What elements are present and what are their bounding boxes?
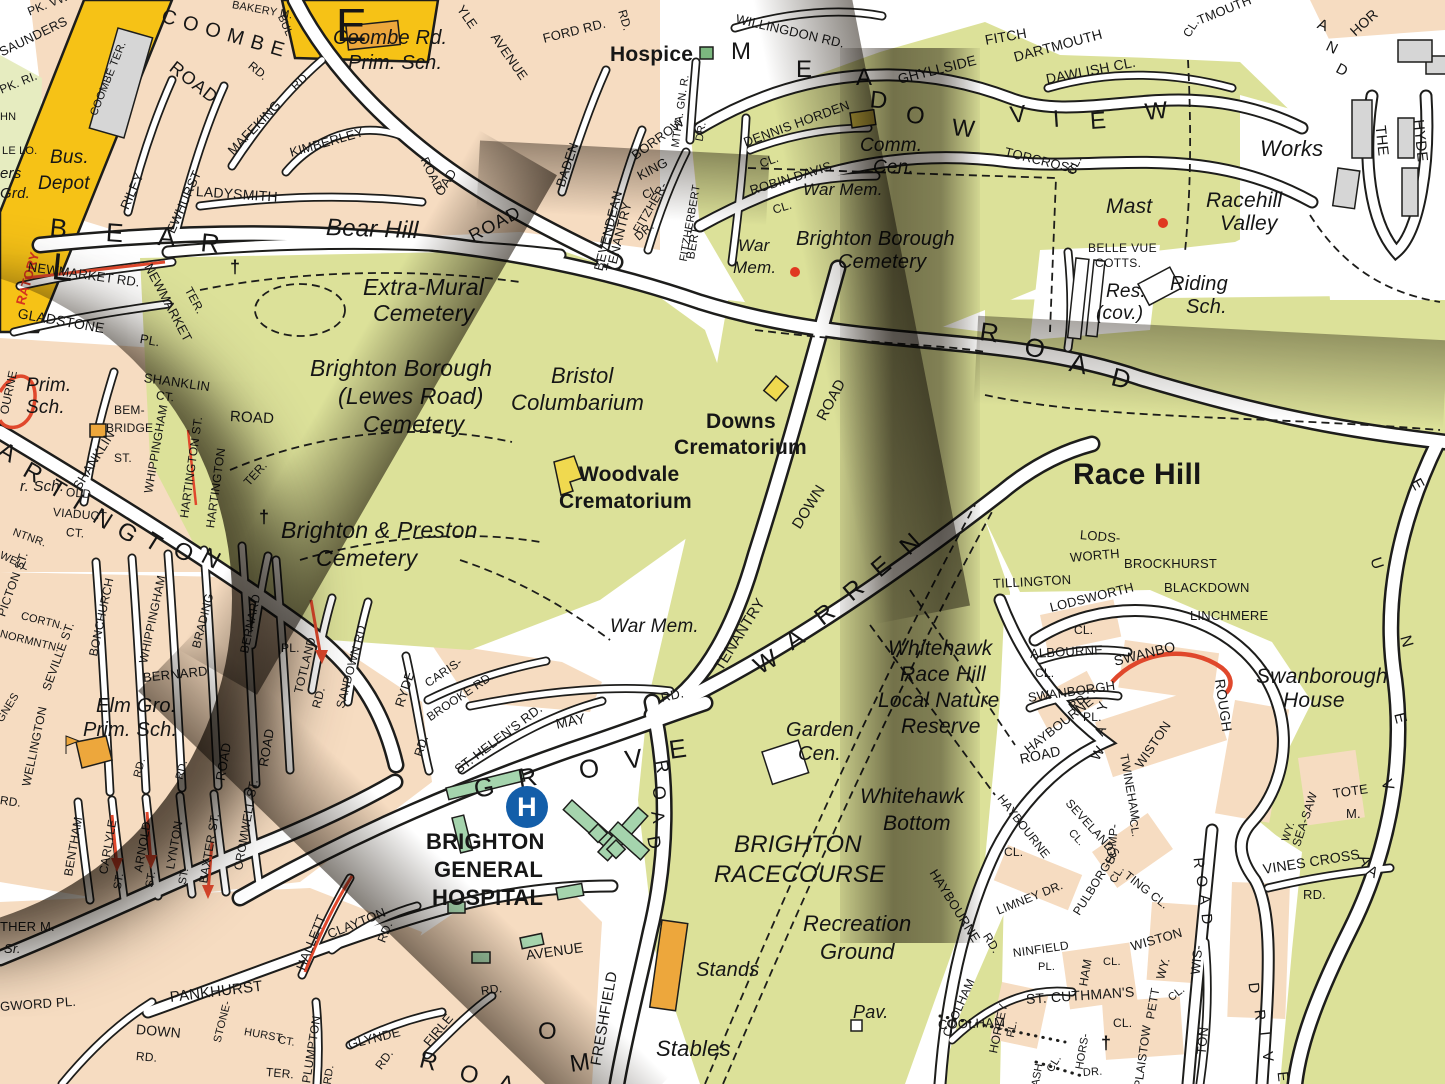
map-label-hospital: HOSPITAL — [432, 887, 543, 909]
map-label-ground: Ground — [820, 941, 895, 963]
map-label-a: A — [0, 439, 21, 468]
map-label-pk-ri: PK. RI. — [0, 70, 39, 96]
map-label-bem: BEM- — [114, 404, 145, 416]
map-label-cl: CL. — [1065, 154, 1084, 177]
map-label-cov: (cov.) — [1096, 304, 1143, 323]
map-label-haybourne: HAYBOURNE — [927, 867, 982, 944]
map-label-a: A — [1197, 894, 1213, 906]
map-label-d: D — [644, 834, 664, 851]
map-label-cl: CL. — [1113, 1017, 1132, 1029]
map-label-house: House — [1283, 690, 1345, 711]
map-label-wy: WY. — [1154, 956, 1172, 980]
map-label-n: N — [896, 528, 927, 559]
map-label-v: V — [1009, 102, 1028, 128]
map-label-limney-dr: LIMNEY DR. — [995, 879, 1065, 917]
map-label-hors: HORS- — [1075, 1033, 1092, 1071]
map-label-st: ST. — [113, 872, 127, 890]
hospital-symbol-icon: H — [506, 786, 548, 828]
map-label-cl: CL. — [1045, 1054, 1064, 1075]
map-label-bonchurch: BONCHURCH — [87, 577, 115, 658]
map-label-hor: HOR — [1347, 7, 1380, 39]
map-label-r: R — [1191, 857, 1207, 870]
map-label-cemetery: Cemetery — [316, 547, 417, 570]
map-label-road: ROAD — [214, 742, 233, 782]
map-label-v: V — [1377, 778, 1396, 794]
map-label-elm-gro: Elm Gro. — [96, 696, 177, 716]
map-label-ct: CT. — [155, 389, 175, 403]
map-label-o: O — [538, 1020, 558, 1044]
map-label-brading: BRADING — [190, 592, 215, 649]
map-label-road: ROAD — [230, 409, 275, 426]
map-label-mast: Mast — [1106, 196, 1152, 217]
map-label-local-nature: Local Nature — [878, 690, 999, 711]
map-label-crematorium: Crematorium — [559, 491, 692, 512]
map-label-blackdown: BLACKDOWN — [1164, 581, 1250, 594]
map-label-sch: Sch. — [1186, 297, 1227, 317]
map-label-e: E — [105, 219, 125, 246]
map-label-d: D — [1199, 913, 1215, 926]
map-label-d: D — [869, 88, 890, 114]
map-label-o: O — [457, 1061, 482, 1084]
map-label-o: O — [1023, 333, 1048, 362]
map-label-plaistow: PLAISTOW — [1132, 1024, 1153, 1084]
map-label-rd: RD. — [373, 1047, 395, 1071]
map-label-ct: CT. — [65, 526, 85, 540]
map-label-m: M — [731, 40, 752, 64]
map-label-prim: Prim. — [26, 376, 71, 395]
map-label-ther-m: THER M. — [0, 920, 55, 933]
map-label-newmarket: NEWMARKET — [142, 261, 194, 343]
map-label-a: A — [648, 809, 668, 825]
map-label-lods: LODS- — [1079, 528, 1121, 545]
map-label-r: R — [417, 1048, 441, 1076]
map-label-hn: HN — [0, 112, 16, 123]
map-label-cemetery: Cemetery — [363, 413, 464, 436]
map-label-lewes-road: (Lewes Road) — [338, 385, 484, 408]
map-label-brighton-preston: Brighton & Preston — [281, 519, 478, 542]
map-label-tmouth: TMOUTH — [1196, 0, 1254, 27]
map-label-ers: ers — [0, 166, 21, 181]
map-label-o: O — [904, 103, 927, 130]
map-label-down: DOWN — [135, 1022, 181, 1040]
map-label-v: V — [1260, 1051, 1276, 1064]
map-label-ninfield: NINFIELD — [1012, 939, 1069, 959]
map-label-r: R — [810, 599, 840, 630]
map-label-a: A — [1067, 349, 1090, 378]
map-label-bernard: BERNARD — [238, 593, 262, 654]
map-label-wiston: WISTON — [1129, 926, 1184, 953]
map-label-stables: Stables — [656, 1038, 731, 1060]
map-label-brockhurst: BROCKHURST — [1124, 557, 1217, 570]
map-label-ter: TER. — [183, 285, 207, 315]
map-label-cen: Cen. — [798, 744, 841, 764]
map-label-st: ST. — [114, 452, 132, 464]
map-label-rd: RD. — [480, 982, 503, 997]
map-label-res: Res. — [1106, 282, 1146, 301]
map-label-sandown-rd: SANDOWN RD. — [334, 621, 369, 710]
map-label-freshfield: FRESHFIELD — [589, 970, 620, 1067]
map-label-t: T — [141, 529, 167, 558]
map-label-r: R — [1252, 1009, 1268, 1022]
map-label-rd: RD. — [1303, 888, 1326, 901]
map-label-r: R — [200, 229, 222, 257]
map-label-ford-rd: FORD RD. — [541, 17, 607, 45]
map-label-e: E — [1275, 1071, 1291, 1084]
map-label-r: R — [652, 758, 672, 775]
map-label-baden: BADEN — [554, 141, 581, 189]
map-label-w: W — [1144, 99, 1170, 125]
map-label-i: I — [1257, 1031, 1272, 1038]
map-label-pankhurst: PANKHURST — [169, 979, 263, 1005]
map-label-newmarket-rd: NEWMARKET RD. — [27, 260, 141, 289]
map-label-road: ROAD — [466, 203, 524, 245]
map-label-e: E — [867, 552, 897, 583]
map-label-extra-mural: Extra-Mural — [363, 276, 484, 299]
map-label-e: E — [796, 58, 813, 82]
map-label-hartington: HARTINGTON — [204, 447, 227, 529]
map-label-ton: TON — [1195, 1026, 1211, 1055]
map-label-o: O — [577, 754, 602, 783]
map-label-whippingham: WHIPPINGHAM — [142, 404, 169, 494]
map-label-racecourse: RACECOURSE — [714, 863, 885, 887]
map-label-a: A — [1315, 17, 1330, 35]
map-label-g: G — [472, 773, 497, 802]
map-label-a: A — [781, 624, 810, 655]
map-label-brighton: BRIGHTON — [426, 831, 545, 853]
map-canvas[interactable]: PK. VW.SAUNDERSPK. RI.HNLE LO.ersGrd.Bus… — [0, 0, 1445, 1084]
map-label-cl: CL. — [1066, 828, 1086, 849]
map-label-m: M. — [1346, 807, 1361, 820]
map-label-grd: Grd. — [0, 186, 30, 201]
map-label-ash: ASH — [1031, 1063, 1046, 1084]
map-label-cl: CL. — [771, 199, 793, 216]
map-label-ourne: OURNE — [0, 369, 19, 415]
map-label-cl: CL. — [1127, 819, 1141, 838]
map-label-swanborough: Swanborough — [1256, 666, 1388, 687]
map-label-normntn: NORMNTN. — [0, 629, 60, 654]
church-cross-icon: † — [1101, 1034, 1111, 1052]
map-label-o: O — [1194, 875, 1210, 889]
map-label-avenue: AVENUE — [489, 31, 530, 82]
map-label-general: GENERAL — [434, 859, 543, 881]
map-label-cemetery: Cemetery — [838, 252, 926, 272]
map-label-avenue: AVENUE — [525, 940, 584, 962]
map-label-lynton: LYNTON — [164, 820, 184, 870]
map-label-war-mem: War Mem. — [803, 181, 883, 198]
map-label-brighton: BRIGHTON — [734, 833, 862, 857]
map-label-cortn: CORTN. — [20, 611, 65, 632]
map-label-ct: CT. — [277, 1035, 296, 1049]
map-label-racehill: Racehill — [1206, 190, 1282, 211]
map-labels: PK. VW.SAUNDERSPK. RI.HNLE LO.ersGrd.Bus… — [0, 0, 1445, 1084]
map-label-firle: FIRLE — [421, 1011, 455, 1048]
map-label-rd: RD. — [175, 759, 190, 781]
map-label-gladstone: GLADSTONE — [17, 306, 106, 335]
map-label-rd: RD. — [412, 734, 430, 758]
map-label-rd: RD. — [310, 686, 327, 710]
map-label-comm: Comm. — [860, 136, 922, 155]
church-cross-icon: † — [259, 508, 269, 526]
map-label-w: W — [1088, 744, 1107, 763]
map-label-cen: Cen. — [873, 158, 914, 177]
map-label-vines-cross: VINES CROSS — [1262, 847, 1361, 876]
map-label-war: War — [738, 237, 769, 254]
map-label-rough: ROUGH — [1213, 678, 1234, 733]
map-label-cl: CL. — [1103, 957, 1121, 968]
map-label-road: ROAD — [257, 728, 276, 768]
map-label-fitzherbert: FITZHERBERT — [679, 184, 703, 263]
map-label-cl: CL. — [758, 152, 780, 170]
map-label-cemetery: Cemetery — [373, 302, 474, 325]
map-label-sch: Sch. — [26, 398, 65, 417]
map-label-cl: CL. — [1035, 667, 1054, 679]
map-label-caris: CARIS- — [423, 656, 464, 689]
map-label-n: N — [197, 544, 224, 574]
map-label-race-hill: Race Hill — [1073, 460, 1202, 490]
map-label-coombe-ter: COOMBE TER. — [89, 40, 129, 117]
map-label-glynde: GLYNDE — [346, 1025, 401, 1051]
map-label-gnes: GNES — [0, 691, 22, 724]
map-label-linchmere: LINCHMERE — [1190, 609, 1268, 622]
map-label-cl: CL. — [1074, 624, 1093, 636]
map-label-carlyle: CARLYLE — [97, 819, 118, 875]
map-label-bristol: Bristol — [551, 365, 614, 387]
map-label-the: THE — [1373, 125, 1391, 157]
map-label-race-hill: Race Hill — [900, 664, 986, 685]
map-label-ham: HAM — [1077, 958, 1094, 987]
map-label-prim-sch: Prim. Sch. — [348, 53, 442, 73]
map-label-rd: RD. — [246, 59, 270, 82]
map-label-sr: Sr. — [4, 942, 21, 955]
map-label-bentham: BENTHAM — [62, 816, 84, 877]
map-label-arnold: ARNOLD — [132, 821, 153, 874]
map-label-r: R — [978, 318, 1001, 346]
map-label-may: MAY — [555, 711, 587, 731]
map-label-hyde: HYDE — [1411, 119, 1430, 163]
map-label-saunders: SAUNDERS — [0, 14, 69, 58]
poi-dot-icon — [790, 267, 800, 277]
map-label-pl: PL. — [139, 332, 161, 348]
map-label-ryde: RYDE — [393, 670, 417, 709]
map-label-pett: PETT — [1144, 987, 1161, 1020]
map-label-o: O — [169, 538, 198, 569]
map-label-downs: Downs — [706, 411, 776, 432]
map-label-cl: CL. — [1004, 846, 1023, 858]
map-label-ter: TER. — [265, 1066, 294, 1080]
map-label-bottom: Bottom — [883, 813, 951, 834]
map-label-st-cuthman-s: ST. CUTHMAN'S — [1026, 984, 1135, 1006]
map-label-rd: RD. — [375, 920, 394, 944]
map-label-ting-cl: TING CL. — [1122, 869, 1171, 911]
map-label-o: O — [649, 784, 669, 802]
map-label-valley: Valley — [1220, 213, 1278, 234]
map-label-columbarium: Columbarium — [511, 392, 644, 414]
map-label-shanklin: SHANKLIN — [143, 371, 211, 393]
map-label-r: R — [839, 575, 870, 606]
map-label-w: W — [750, 645, 784, 679]
map-label-tillington: TILLINGTON — [993, 573, 1072, 590]
map-label-plumpton: PLUMPTON — [300, 1015, 322, 1084]
map-label-stands: Stands — [696, 960, 759, 980]
map-label-whitehawk: Whitehawk — [860, 786, 965, 807]
map-label-wis: WIS- — [1189, 944, 1205, 975]
map-label-rd: RD. — [0, 794, 22, 809]
map-label-whitehawk: Whitehawk — [888, 638, 993, 659]
map-label-e: E — [1407, 476, 1427, 494]
map-label-yle: YLE — [455, 3, 480, 31]
poi-dot-icon — [1158, 218, 1168, 228]
map-label-tote: TOTE — [1332, 782, 1369, 800]
map-label-pl: PL. — [1006, 1020, 1020, 1039]
map-label-st: ST. — [145, 870, 159, 888]
map-label-down: DOWN — [790, 483, 828, 532]
map-label-prim-sch: Prim. Sch. — [83, 720, 177, 740]
map-label-garden: Garden — [786, 720, 854, 740]
map-label-ratory: RATORY — [14, 250, 41, 306]
map-label-pk-vw: PK. VW. — [26, 0, 73, 18]
map-label-rd: RD. — [616, 8, 633, 32]
map-label-crematorium: Crematorium — [674, 437, 807, 458]
map-label-bridge: BRIDGE — [106, 422, 153, 434]
map-label-w: W — [951, 116, 977, 142]
map-label-ladysmith: LADYSMITH — [196, 184, 279, 204]
map-label-bernard: BERNARD — [142, 664, 208, 684]
map-label-cl: CL. — [1167, 984, 1188, 1004]
map-label-gword-pl: GWORD PL. — [0, 995, 76, 1013]
map-label-le-lo: LE LO. — [2, 146, 37, 157]
map-label-road: ROAD — [166, 58, 221, 107]
map-label-whippingham: WHIPPINGHAM — [137, 574, 167, 664]
map-label-road: ROAD — [814, 377, 848, 423]
map-label-brighton-borough: Brighton Borough — [796, 229, 955, 249]
map-label-b: B — [49, 214, 70, 242]
map-label-pl: PL. — [1038, 962, 1055, 973]
map-label-riding: Riding — [1170, 274, 1228, 294]
map-label-pl: PL. — [281, 642, 300, 654]
map-label-mtha-gn-r: MTHA. GN. R. — [671, 74, 692, 148]
map-label-a: A — [157, 223, 177, 250]
map-label-cromwell-st: CROMWELL ST. — [232, 778, 260, 871]
map-label-stone: STONE- — [213, 1000, 234, 1044]
map-label-rd: RD. — [323, 1064, 337, 1084]
map-label-pav: Pav. — [853, 1003, 888, 1021]
map-label-swanbo: SWANBO — [1112, 639, 1176, 668]
map-label-dennis-horden: DENNIS HORDEN — [742, 98, 851, 148]
map-label-d: D — [1246, 982, 1262, 995]
map-label-rd: RD. — [289, 69, 313, 92]
map-label-works: Works — [1260, 138, 1323, 160]
map-label-dr: DR. — [1083, 1067, 1103, 1079]
map-label-mem: Mem. — [733, 259, 776, 276]
map-label-belle-vue: BELLE VUE — [1088, 242, 1157, 254]
map-label-hospice: Hospice — [610, 44, 693, 65]
map-label-v: V — [623, 745, 645, 773]
map-label-st: ST. — [178, 867, 192, 885]
map-label-bus: Bus. — [50, 148, 89, 167]
map-label-n: N — [1396, 634, 1415, 650]
map-label-ntnr: NTNR. — [11, 527, 47, 549]
map-label-cotts: COTTS. — [1095, 257, 1141, 269]
map-label-wiston: WISTON — [1133, 719, 1173, 770]
map-label-baxter-st: BAXTER ST. — [197, 812, 221, 884]
map-label-sea-saw: SEA-SAW — [1290, 791, 1319, 848]
map-label-d: D — [1109, 363, 1134, 393]
map-label-recreation: Recreation — [803, 913, 911, 935]
map-label-wellington: WELLINGTON — [20, 705, 49, 787]
map-label-a: A — [495, 1071, 517, 1084]
map-label-ter: TER. — [242, 459, 270, 488]
map-label-riley: RILEY — [118, 171, 146, 212]
map-label-a: A — [1092, 723, 1109, 737]
map-label-i: I — [1052, 107, 1061, 131]
map-label-u: U — [1366, 556, 1385, 573]
map-label-rd: RD. — [133, 757, 148, 779]
map-label-rd: RD. — [981, 931, 1002, 955]
map-label-g: G — [112, 518, 142, 549]
map-label-rd: RD. — [135, 1050, 157, 1064]
map-label-albourne: ALBOURNE — [1030, 643, 1104, 660]
map-label-coombe-rd: Coombe Rd. — [333, 28, 447, 48]
map-label-bear-hill: Bear Hill — [326, 216, 419, 243]
map-label-woodvale: Woodvale — [579, 464, 679, 485]
map-label-depot: Depot — [38, 174, 90, 193]
map-label-shanklin: SHANKLIN — [70, 429, 116, 492]
map-label-brighton-borough: Brighton Borough — [310, 357, 492, 380]
map-label-fitch: FITCH — [984, 26, 1028, 47]
map-label-hallett: HALLETT — [294, 913, 328, 972]
map-label-dr: DR. — [695, 121, 709, 142]
church-cross-icon: † — [230, 258, 240, 276]
map-label-reserve: Reserve — [901, 716, 981, 737]
map-label-war-mem: War Mem. — [610, 617, 699, 636]
map-label-rd: RD. — [660, 686, 685, 703]
map-label-d: D — [1333, 61, 1350, 79]
map-label-ghyllside: GHYLLSIDE — [896, 53, 977, 86]
map-label-kimberley: KIMBERLEY — [288, 125, 365, 159]
map-label-dawlish-cl: DAWLISH CL. — [1045, 55, 1137, 86]
map-label-mafeking: MAFEKING — [225, 98, 283, 157]
map-label-worth: WORTH — [1069, 547, 1120, 564]
map-label-n: N — [1324, 39, 1341, 57]
map-label-hartington-st: HARTINGTON ST. — [178, 416, 204, 519]
map-label-e: E — [1089, 109, 1108, 134]
map-label-e: E — [1390, 711, 1408, 726]
